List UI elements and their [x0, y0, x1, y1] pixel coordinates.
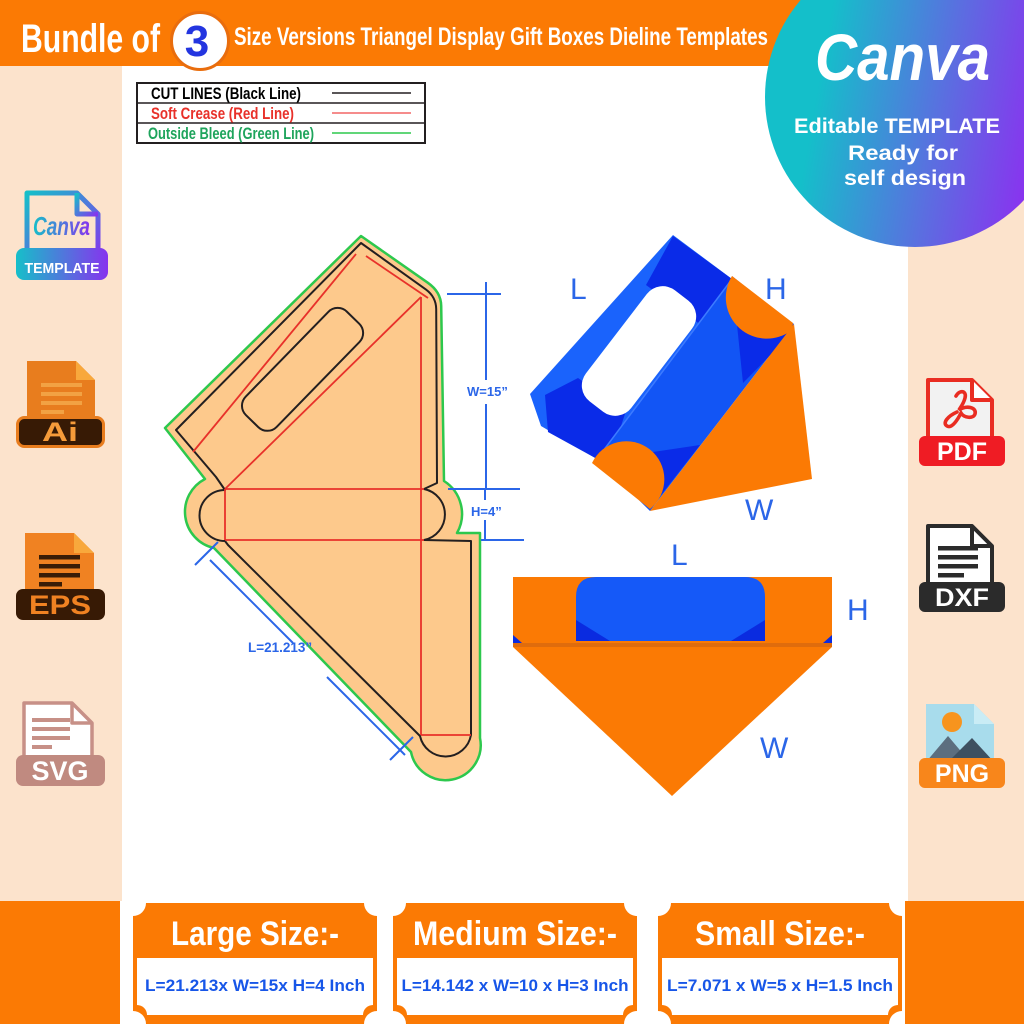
svg-text:Canva: Canva — [33, 211, 90, 241]
svg-text:CUT LINES (Black Line): CUT LINES (Black Line) — [151, 85, 301, 103]
svg-text:DXF: DXF — [935, 584, 989, 612]
svg-text:L: L — [570, 273, 587, 306]
svg-text:SVG: SVG — [32, 756, 89, 786]
svg-text:W: W — [760, 732, 789, 765]
svg-text:Soft Crease (Red Line): Soft Crease (Red Line) — [151, 105, 294, 123]
svg-text:L=14.142 x W=10 x H=3 Inch: L=14.142 x W=10 x H=3 Inch — [402, 976, 629, 995]
svg-text:L: L — [671, 540, 688, 572]
svg-text:3: 3 — [185, 17, 209, 66]
svg-text:L=21.213”: L=21.213” — [248, 640, 312, 655]
svg-text:Medium Size:-: Medium Size:- — [413, 915, 617, 953]
svg-text:W: W — [745, 494, 774, 525]
svg-text:TEMPLATE: TEMPLATE — [25, 260, 100, 277]
svg-text:W=15”: W=15” — [467, 384, 508, 399]
svg-text:Bundle of: Bundle of — [21, 17, 161, 61]
svg-text:self design: self design — [844, 167, 966, 190]
svg-text:Outside Bleed (Green Line): Outside Bleed (Green Line) — [148, 125, 314, 143]
svg-text:Size Versions Triangel Display: Size Versions Triangel Display Gift Boxe… — [234, 23, 768, 51]
svg-text:L=7.071 x W=5 x H=1.5 Inch: L=7.071 x W=5 x H=1.5 Inch — [667, 976, 893, 995]
svg-text:H: H — [847, 594, 869, 627]
svg-text:Editable TEMPLATE: Editable TEMPLATE — [794, 115, 1000, 138]
svg-text:H: H — [765, 273, 787, 306]
svg-text:Canva: Canva — [815, 20, 990, 94]
svg-text:L=21.213x W=15x H=4 Inch: L=21.213x W=15x H=4 Inch — [145, 976, 365, 995]
svg-text:PNG: PNG — [935, 760, 989, 788]
svg-text:Ai: Ai — [42, 417, 78, 447]
svg-text:Large Size:-: Large Size:- — [171, 915, 339, 953]
svg-text:PDF: PDF — [937, 438, 987, 466]
svg-text:H=4”: H=4” — [471, 504, 502, 519]
svg-text:Ready for: Ready for — [848, 142, 958, 165]
svg-text:Small Size:-: Small Size:- — [695, 915, 865, 953]
svg-text:EPS: EPS — [29, 590, 91, 620]
